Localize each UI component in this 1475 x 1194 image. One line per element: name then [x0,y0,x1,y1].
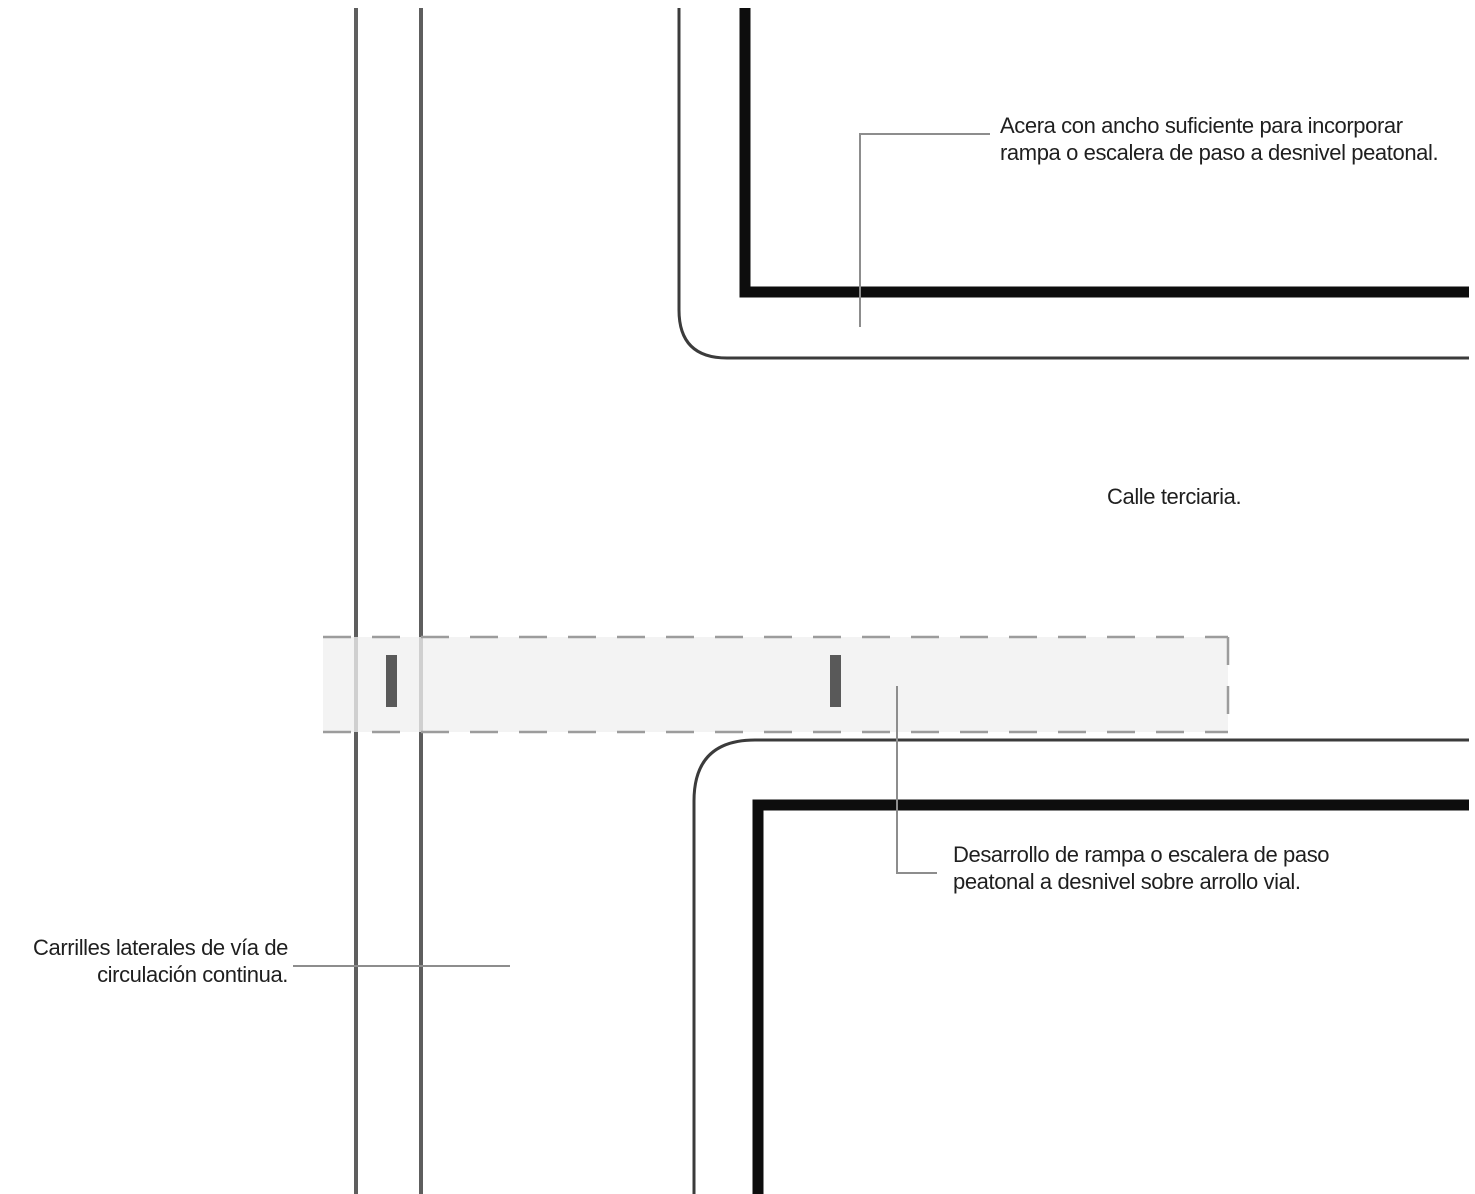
diagram-canvas: Acera con ancho suficiente para incorpor… [0,0,1475,1194]
crossing-tick-left [386,655,397,707]
sidewalk-annotation: Acera con ancho suficiente para incorpor… [1000,112,1438,166]
sidewalk-annotation-line2: rampa o escalera de paso a desnivel peat… [1000,139,1438,166]
intersection-plan-drawing [0,0,1475,1194]
ramp-annotation-line2: peatonal a desnivel sobre arrollo vial. [953,868,1329,895]
ramp-annotation-line1: Desarrollo de rampa o escalera de paso [953,841,1329,868]
street-label: Calle terciaria. [1107,483,1241,510]
pedestrian-crossing-band [323,637,1228,732]
lanes-annotation-line1: Carrilles laterales de vía de [33,934,288,961]
upper-corner-curb-thin [679,8,1469,358]
lanes-annotation-line2: circulación continua. [33,961,288,988]
sidewalk-leader-line [860,134,990,327]
ramp-annotation: Desarrollo de rampa o escalera de paso p… [953,841,1329,895]
crossing-tick-right [830,655,841,707]
lanes-annotation: Carrilles laterales de vía de circulació… [33,934,288,988]
sidewalk-annotation-line1: Acera con ancho suficiente para incorpor… [1000,112,1438,139]
